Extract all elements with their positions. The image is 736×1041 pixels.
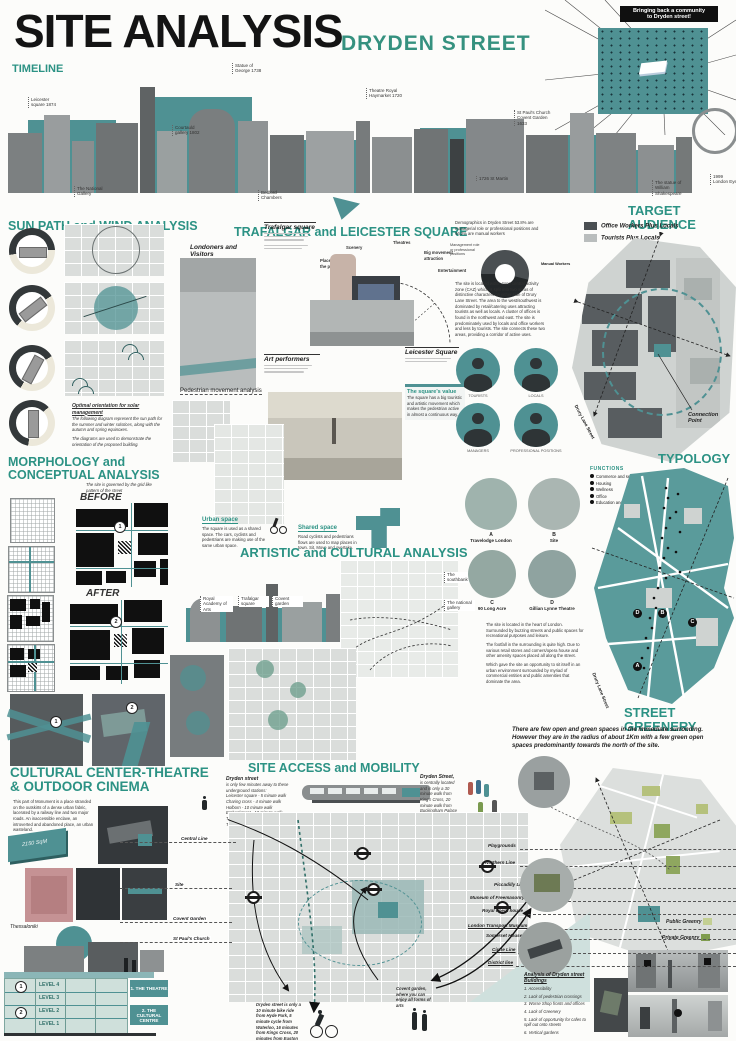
typology-marker-c: C [688,618,697,627]
street-photo-1 [628,950,728,992]
cultural-heading-1: CULTURAL CENTER-THEATRE [10,766,209,780]
page-title: SITE ANALYSIS [14,8,343,54]
line-label: Covent Garden [172,916,207,921]
underground-roundel-icon [247,891,260,904]
circle-photo-theatre [528,550,576,598]
site-volume-3d: 2150 SqM [8,828,66,862]
landmark-label: Covent garden [272,596,303,607]
cyclists-icon [270,518,290,534]
analysis-title: Analysis of Dryden street Buildings [524,972,594,984]
timeline-label: Theatre Royal Haymarket 1720 [366,88,403,99]
big-ben-tower [140,87,155,193]
morphology-heading: MORPHOLOGY and CONCEPTUAL ANALYSIS [8,456,160,482]
cyclist-figure [310,1008,340,1038]
circle-caption-b: B Site [528,532,580,543]
analysis-item: 2. Lack of pedestrian crossings [524,994,594,1000]
green-circles-map [228,648,356,760]
site-text-1: The site is located in the heart of Lond… [486,622,584,639]
sun-map-2 [64,282,164,334]
cultural-centre-label-box: 2. THE CULTURAL CENTRE [130,1005,168,1025]
caz-text: The site is located within zone central … [455,281,545,338]
community-label-line2: to Dryden street! [623,14,715,20]
grid-study-4 [7,644,55,692]
down-arrow-icon [328,197,360,223]
professionals-photo-circle [514,403,558,447]
timeline-label: Leicester square 1874 [28,97,61,108]
legend-office-workers: Office Workers Plus Locals [601,224,678,230]
circle-photo-site [528,478,580,530]
trafalgar-historic-photo [268,392,402,480]
people-label: PROFESSIONAL POSITIONS [510,449,562,453]
line-label: Playgrounds [488,843,516,848]
line-label: Central Line [180,836,209,841]
timeline-label: The National Gallery [74,186,111,197]
aerial-photo-1: 1 [10,694,83,766]
grid-study-3 [7,595,54,642]
locals-photo-circle [514,348,558,392]
square-value-box: The square's value The square has a big … [405,384,465,420]
people-label: TOURISTS [452,394,504,398]
cinema-montage [4,930,168,972]
line-label: District line [488,960,513,965]
site-description: The site is located in the heart of Lond… [486,622,584,685]
theatre-label-box: 1. THE THEATRE [130,980,168,997]
office-workers-swatch [584,222,597,230]
level-label: LEVEL 2 [39,1008,59,1014]
section-marker-1: 1 [15,981,27,993]
circle-caption-d: D Gillian Lynne Theatre [526,600,578,611]
analysis-item: 6. Vertical gardens [524,1030,594,1036]
timeline-skyline [0,85,736,193]
sun-path-diagram-1 [9,228,55,274]
sun-caption-text1: The following diagram represent the sun … [72,416,164,433]
timeline-label: St Paul's Church Covent Garden 1633 [514,110,553,126]
mobility-inset-photo-1 [520,858,574,912]
cultural-heading: CULTURAL CENTER-THEATRE & OUTDOOR CINEMA [10,766,209,794]
sun-map-1 [64,224,164,276]
circle-photo-longacre [468,550,516,598]
donut-label-management: Management role or professional position… [450,243,480,257]
model-photo-2 [76,868,120,920]
sun-caption: Optimal orientation for solar management… [72,403,164,447]
sun-path-diagram-2 [9,285,55,331]
connection-point-label: Connection Point [688,412,730,424]
london-eye [692,108,736,154]
aerial-strip-photo [170,655,224,757]
line-label: St Paul's Church [172,936,211,941]
timeline-label: Statue of George 1738 [232,63,265,74]
mobility-heading: SITE ACCESS and MOBILITY [248,762,420,775]
urban-space-block: Urban space The square is used as a shar… [202,508,266,549]
line-label: Site [174,882,184,887]
leicester-title: Leicester Square [405,349,459,356]
circle-label: Site [528,538,580,543]
wind-map [64,340,164,396]
arc-label: Scenery [346,245,366,251]
managers-photo-circle [456,403,500,447]
sun-caption-title: Optimal orientation for solar management [72,403,164,416]
analysis-item: 1. Accessibility [524,986,594,992]
people-figure [412,1008,417,1030]
sun-caption-text2: The diagrams are used to demonstrate the… [72,436,164,447]
section-baseline [4,1033,156,1036]
circle-label: Travelodge London [465,538,517,543]
after-diagram: 2 [70,600,168,684]
page-subtitle: DRYDEN STREET [341,32,531,56]
circle-caption-c: C 90 Long Acre [466,600,518,611]
aerial-marker-1: 1 [50,716,62,728]
landmark-label: Trafalgar square [238,596,269,607]
covent-note: Covent garden, where you can enjoy all f… [396,986,432,1009]
analysis-aerial-photo [594,978,628,1032]
line-label: Museum of Freemasonry [470,895,524,900]
public-greenery-swatch [703,918,712,925]
cultural-heading-2: & OUTDOOR CINEMA [10,780,209,794]
art-performers-block: Art performers [264,354,320,374]
st-martin-spire [356,121,370,193]
pedestrian-analysis-label: Pedestrian movement analysis [180,388,262,395]
timeline-heading: TIMELINE [12,64,63,76]
artistic-heading: ARTISTIC and CULTURAL ANALYSIS [240,546,468,560]
mobility-inset-photo-2 [518,922,572,976]
mobility-arrows [228,780,558,1020]
aerial-photo-2: 2 [92,694,165,766]
underground-roundel-icon [356,847,369,860]
timeline-label: Courtauld gallery 1802 [172,125,207,136]
urban-space-title: Urban space [202,517,238,524]
timeline-label: 1999 London Eye [710,174,736,185]
analysis-item: 4. Lack of Greenery [524,1009,594,1015]
equestrian-statue [450,139,464,193]
demographics-intro: Demographics in Dryden Street 53.8% are … [455,220,543,237]
before-label: BEFORE [80,492,122,503]
pedestrian-figure [202,796,207,810]
trafalgar-square-block: Trafalgar square [264,222,316,251]
circle-label: 90 Long Acre [466,606,518,611]
circle-label: Gillian Lynne Theatre [526,606,578,611]
people-label: MANAGERS [452,449,504,453]
morphology-heading-2: CONCEPTUAL ANALYSIS [8,469,160,482]
underground-roundel-icon [367,883,380,896]
level-label: LEVEL 1 [39,1021,59,1027]
model-photo-dark [98,806,168,864]
cultural-route-map [340,560,458,678]
level-label: LEVEL 4 [39,982,59,988]
typology-marker-a: A [633,662,642,671]
before-diagram: 1 [76,503,168,587]
line-label: Royal opera house [482,908,523,913]
grid-study-1 [10,498,55,543]
sun-path-diagram-3 [9,345,55,391]
people-figure [422,1010,427,1031]
timeline-label: 1726 St Martin [476,176,509,181]
timeline-label: The statue of William Shakespeare [652,180,691,196]
shared-space-title: Shared space [298,525,337,532]
line-label: Circle Line [492,947,516,952]
gallery-dome [189,109,235,193]
art-performers-title: Art performers [264,356,320,363]
before-marker-1: 1 [114,521,126,533]
sun-path-diagram-4 [9,400,55,446]
people-label: LOCALS [510,394,562,398]
level-label: LEVEL 3 [39,995,59,1001]
legend-public-greenery: Public Greenry [666,918,716,925]
grid-study-2 [8,546,55,593]
circle-caption-a: A Travelodge London [465,532,517,543]
trafalgar-square-title: Trafalgar square [264,224,316,231]
circle-photo-travelodge [465,478,517,530]
street-photo-2 [628,995,728,1037]
landmark-label: Royal Academy of Arts [200,596,233,612]
public-greenery-label: Public Greenry [666,919,702,925]
section-drawing: LEVEL 4 LEVEL 3 LEVEL 2 LEVEL 1 1 2 [4,978,128,1034]
square-value-text: The square has a big touristic and artis… [407,395,463,418]
section-marker-2: 2 [15,1007,27,1019]
typology-marker-d: D [633,609,642,618]
line-label: Northern Line [485,860,515,865]
typology-heading: TYPOLOGY [658,452,730,466]
community-label: Bringing back a community to Dryden stre… [620,6,718,22]
after-label: AFTER [86,588,119,599]
bike-note: Dryden street is only a 10 minute bike r… [256,1002,302,1041]
after-marker-2: 2 [110,616,122,628]
typology-map [588,468,736,710]
shared-space-glyph [356,508,400,548]
site-text-3: Which gave the site an opportunity to si… [486,662,584,685]
model-photo-3 [122,868,167,920]
typology-marker-b: B [658,609,667,618]
tourists-photo-circle [456,348,500,392]
analysis-item: 5. Lack of opportunity for cafes to spil… [524,1017,594,1028]
aerial-marker-2: 2 [126,702,138,714]
site-analysis-poster: SITE ANALYSIS DRYDEN STREET Bringing bac… [0,0,736,1041]
crowd-photo [310,300,414,346]
site-text-2: The footfall in the surrounding is quite… [486,642,584,659]
londoners-photo [180,258,256,390]
arc-label: Entertainment [438,268,466,274]
pink-building-photo [25,868,73,922]
arc-label: Theatres [393,240,413,246]
timeline-label: Bedford Chambers [258,190,295,201]
analysis-block: Analysis of Dryden street Buildings 1. A… [524,972,594,1036]
cultural-text: This part of Monument is a place strande… [13,799,97,833]
analysis-item: 3. Worse Shop fronts and offices [524,1001,594,1007]
leicester-block: Leicester Square [405,347,459,364]
line-label: London Transport Museum [468,923,527,928]
line-label: Somerset House [486,933,522,938]
londoners-title: Londoners and Visitors [190,244,260,258]
